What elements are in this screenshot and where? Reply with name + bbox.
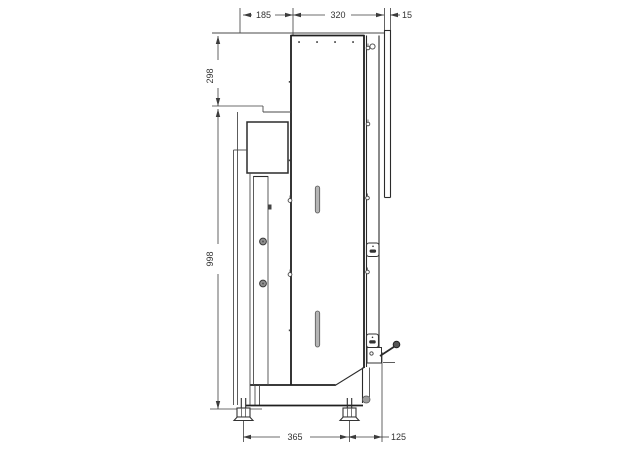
lever-arm bbox=[380, 347, 395, 357]
technical-drawing: 185 320 15 298 998 365 125 bbox=[0, 0, 624, 460]
door-slot-holes bbox=[315, 186, 319, 347]
leveling-foot-rear bbox=[340, 398, 359, 421]
rail-tab bbox=[268, 205, 272, 210]
dim-label-top-body: 320 bbox=[330, 10, 345, 20]
dim-label-height-upper: 298 bbox=[205, 68, 215, 83]
lever-knob bbox=[393, 341, 400, 348]
front-box bbox=[247, 122, 288, 173]
door-latch-lower bbox=[367, 334, 379, 348]
back-panel bbox=[385, 30, 391, 198]
door-screw-dots bbox=[289, 41, 354, 331]
dim-label-feet-span: 365 bbox=[287, 432, 302, 442]
base-plinth bbox=[246, 385, 363, 406]
dim-label-rear-offset: 125 bbox=[391, 432, 406, 442]
drawing-canvas: 185 320 15 298 998 365 125 bbox=[0, 0, 624, 460]
machine-top bbox=[212, 33, 384, 36]
dim-label-back-panel: 15 bbox=[402, 10, 412, 20]
front-step bbox=[263, 106, 291, 112]
dim-label-top-front: 185 bbox=[256, 10, 271, 20]
dimension-lines bbox=[218, 15, 400, 437]
dimension-arrowheads bbox=[216, 13, 398, 439]
rail-bolts bbox=[260, 238, 267, 287]
rear-damper bbox=[363, 368, 371, 404]
door-latch-upper bbox=[367, 243, 380, 257]
door-panel bbox=[250, 35, 364, 386]
hinge-strip-keyholes bbox=[366, 44, 375, 274]
dim-label-height-total: 998 bbox=[205, 251, 215, 266]
hinge-strip bbox=[367, 36, 380, 368]
